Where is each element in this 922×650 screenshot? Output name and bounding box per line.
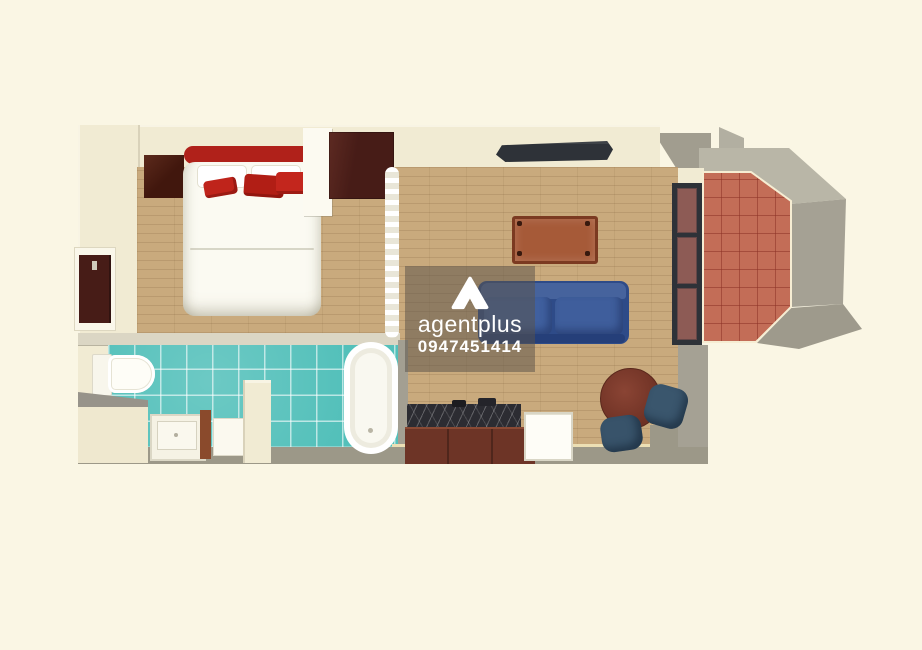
triangle-a-logo-icon bbox=[448, 273, 492, 311]
bed-blanket-crease bbox=[190, 248, 314, 250]
balcony-door-pane bbox=[677, 188, 697, 233]
floor-plan-canvas: agentplus 0947451414 bbox=[0, 0, 922, 650]
toilet bbox=[108, 355, 155, 393]
dining-chair bbox=[599, 413, 644, 453]
coffee-table bbox=[512, 216, 598, 264]
bathtub-drain bbox=[368, 428, 373, 433]
balcony-door-pane bbox=[677, 288, 697, 340]
watermark-phone: 0947451414 bbox=[418, 337, 523, 356]
balcony-door-pane bbox=[677, 237, 697, 284]
vanity-wood-side bbox=[200, 410, 211, 459]
kitchen-cabinet bbox=[405, 427, 535, 464]
vanity-knob bbox=[174, 433, 178, 437]
bathroom-low-wall bbox=[78, 407, 148, 463]
room-divider-curtain bbox=[385, 167, 399, 338]
bathroom-cabinet bbox=[213, 418, 246, 456]
sofa-cushion bbox=[555, 297, 623, 335]
sink-faucet bbox=[452, 400, 466, 407]
watermark-brand: agentplus bbox=[418, 312, 522, 337]
bathroom-partition-wall bbox=[243, 380, 271, 463]
kitchen-counter-marble bbox=[407, 404, 521, 429]
watermark-overlay: agentplus 0947451414 bbox=[405, 266, 535, 372]
door-handle bbox=[92, 261, 97, 270]
nightstand bbox=[144, 155, 184, 198]
wall-stub bbox=[303, 128, 332, 216]
refrigerator bbox=[524, 412, 573, 461]
sink-basin bbox=[478, 398, 496, 406]
